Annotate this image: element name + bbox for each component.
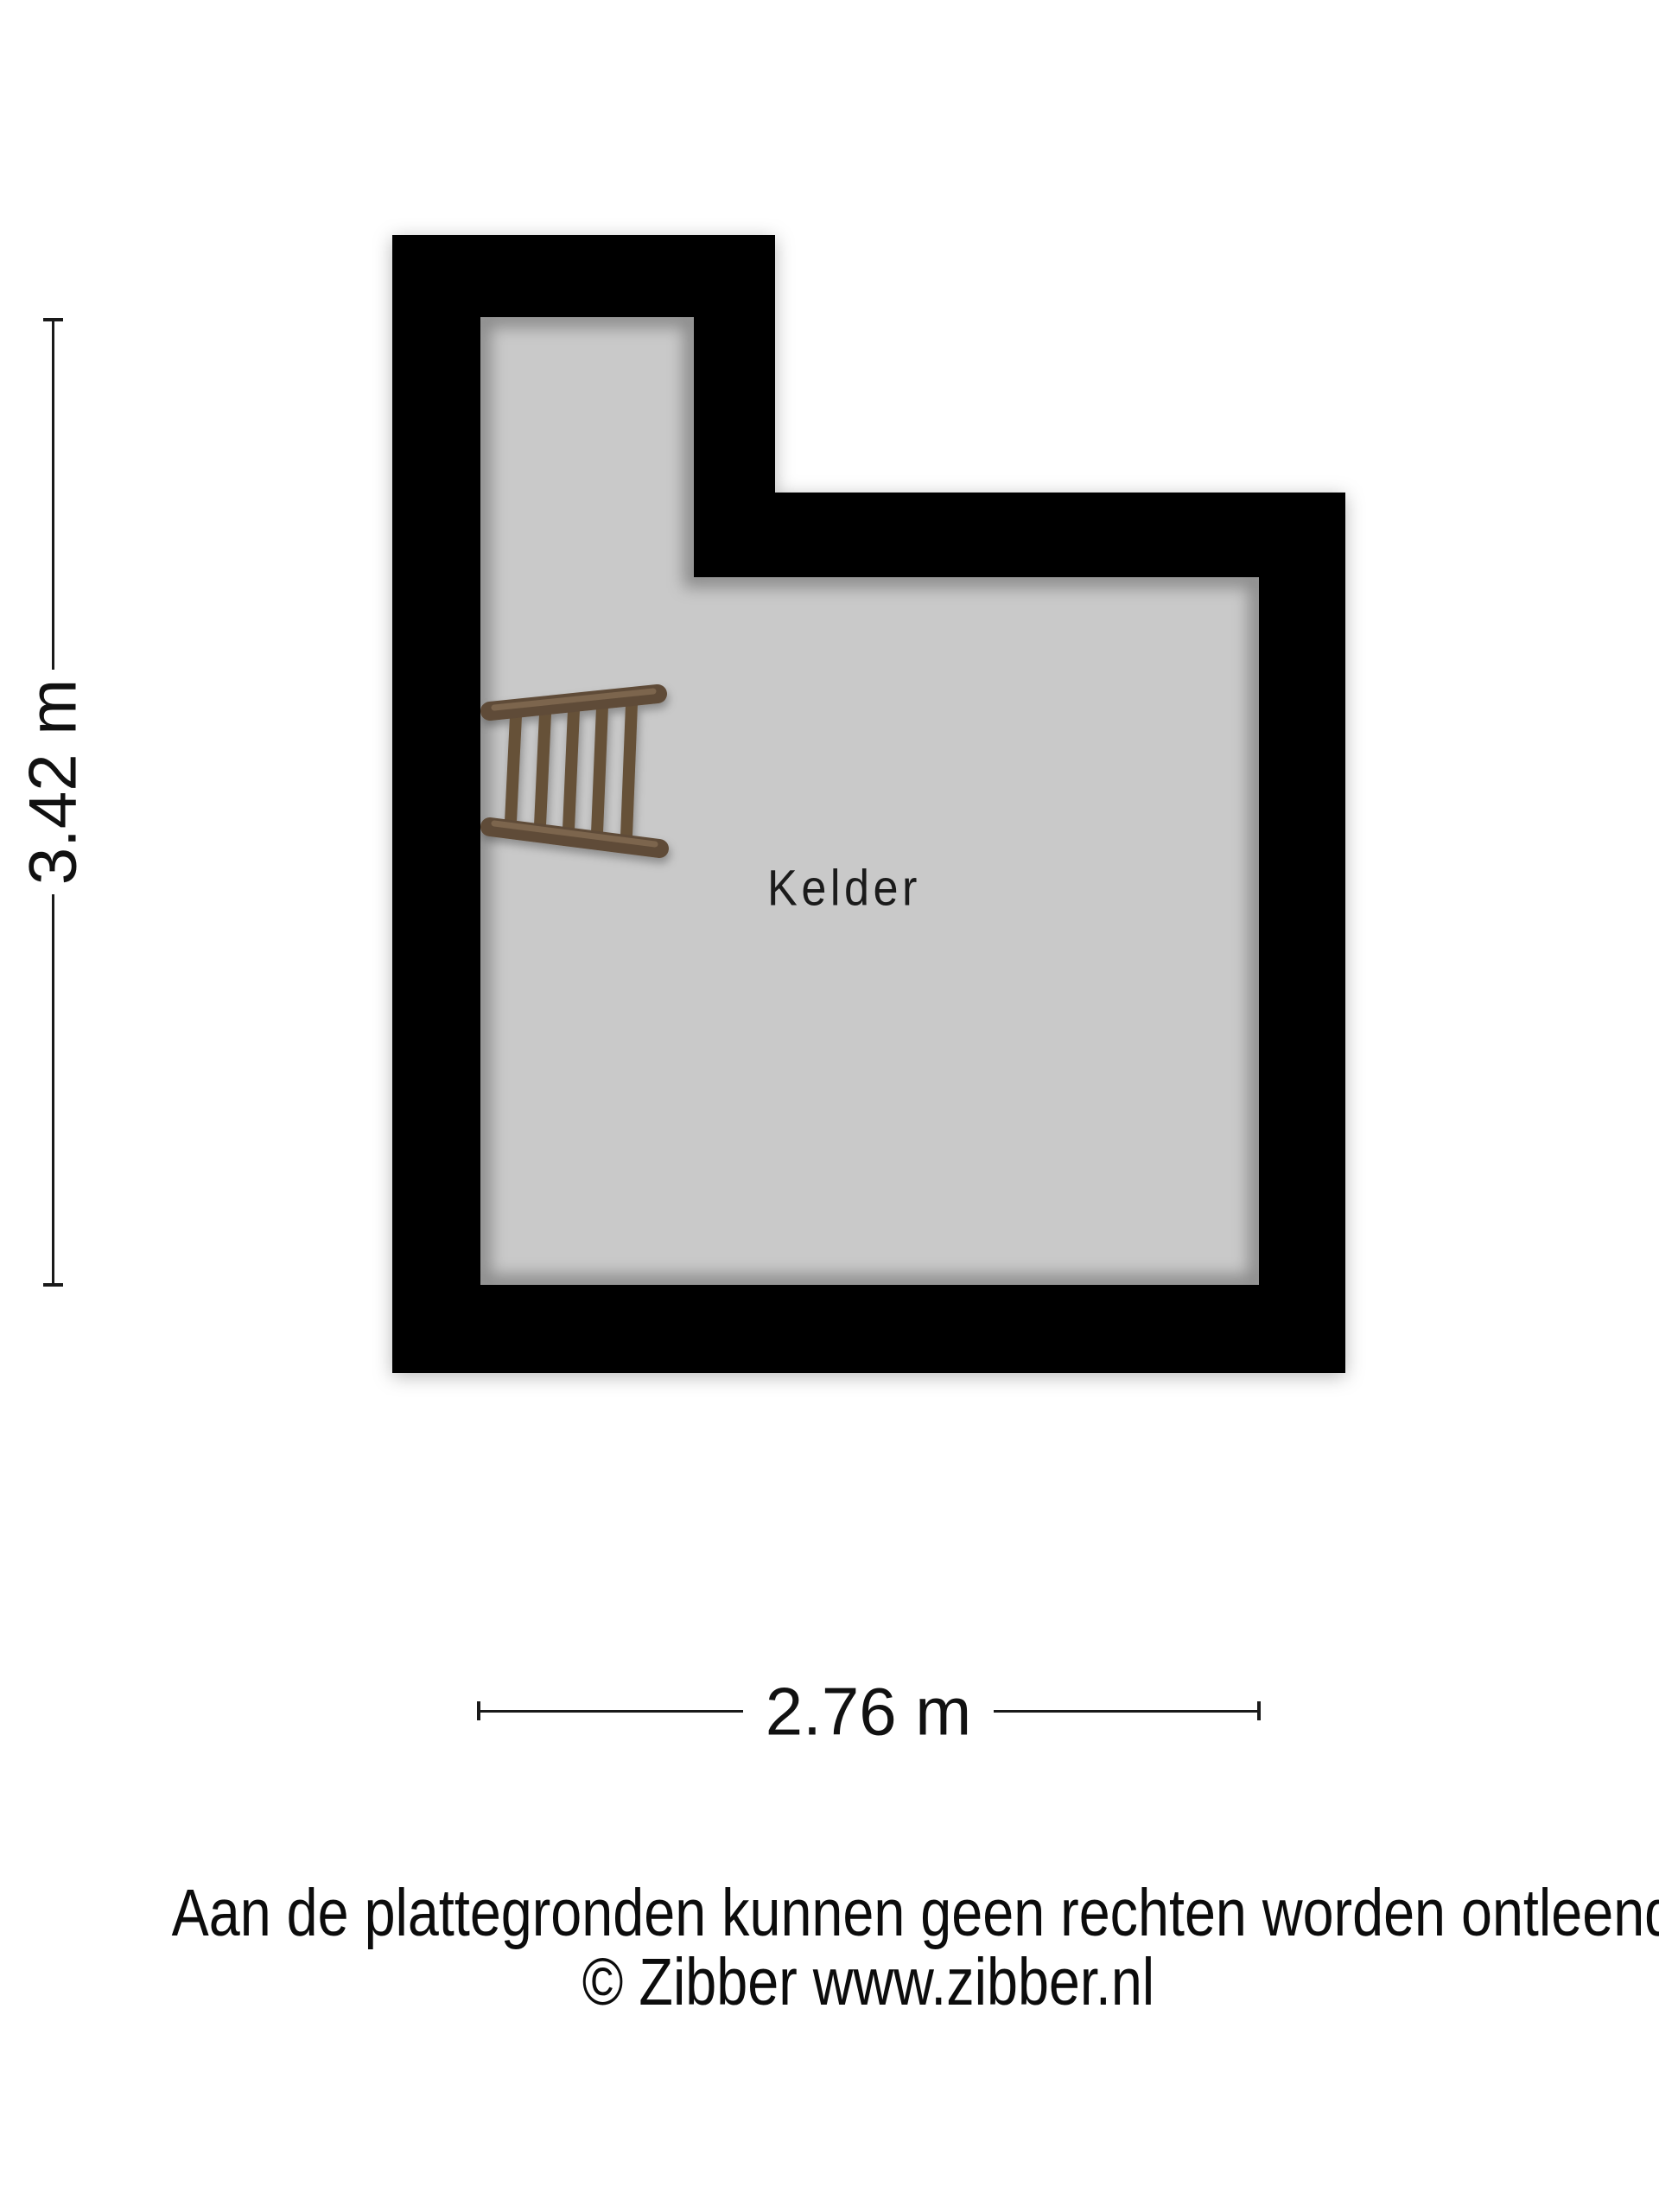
dimension-line-segment	[478, 1710, 743, 1713]
ladder-rung	[540, 714, 545, 825]
disclaimer-line2: © Zibber www.zibber.nl	[172, 1948, 1566, 2017]
dimension-line-segment	[52, 894, 54, 1286]
disclaimer: Aan de plattegronden kunnen geen rechten…	[172, 1878, 1566, 2017]
dimension-cap-bottom	[43, 1283, 63, 1287]
ladder-rung	[569, 710, 574, 829]
disclaimer-line1: Aan de plattegronden kunnen geen rechten…	[172, 1878, 1566, 1948]
dimension-line-segment	[994, 1710, 1260, 1713]
ladder-rung	[597, 707, 602, 833]
room-label: Kelder	[767, 860, 921, 918]
dimension-cap-right	[1257, 1701, 1261, 1720]
horizontal-dimension-label: 2.76 m	[766, 1673, 971, 1751]
dimension-line-segment	[52, 319, 54, 670]
ladder-rung	[511, 716, 516, 822]
vertical-dimension-label: 3.42 m	[14, 679, 92, 885]
ladder-rung	[626, 704, 632, 836]
